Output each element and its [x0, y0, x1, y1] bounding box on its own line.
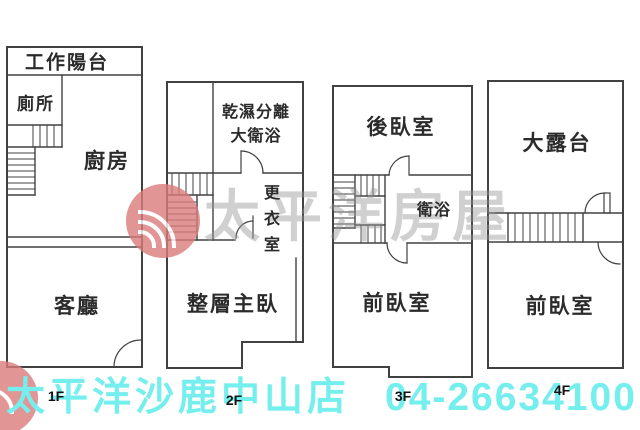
floor-label-3f: 3F [395, 388, 411, 404]
room-label-work-balcony: 工作陽台 [25, 48, 109, 75]
room-label-toilet: 廁所 [17, 90, 55, 115]
floor-label-2f: 2F [226, 392, 242, 408]
floor4-stairs [515, 213, 575, 242]
watermark-brand-text: 太平洋房屋 [204, 188, 514, 246]
room-label-front-bedroom-4f: 前臥室 [526, 290, 595, 320]
footer-phone-number: 04-26634100 [385, 377, 637, 419]
room-label-bathroom-line2: 大衛浴 [230, 122, 281, 146]
floor4-terrace-door-arc [585, 193, 610, 213]
room-label-bathroom-3f: 衛浴 [417, 196, 451, 220]
room-label-living-room: 客廳 [54, 290, 100, 320]
floor4-bedroom-door-arc [598, 242, 620, 264]
floor1-stairs [7, 125, 54, 189]
floor2-bathroom-door-arc [241, 151, 263, 173]
room-label-master-bedroom: 整層主臥 [187, 288, 279, 318]
room-label-dressing-room: 更衣室 [265, 184, 283, 262]
room-label-front-bedroom-3f: 前臥室 [363, 287, 432, 317]
watermark-logo-icon [126, 184, 200, 258]
floorplan-image: 太平洋房屋 工作陽台 廁所 廚房 客廳 1F 乾濕分離 大衛浴 更衣室 整層主臥… [0, 0, 640, 430]
room-label-back-bedroom: 後臥室 [367, 111, 436, 141]
room-label-bathroom-line1: 乾濕分離 [222, 98, 290, 122]
floor3-back-bedroom-door-arc [389, 156, 409, 175]
room-label-kitchen: 廚房 [84, 145, 130, 175]
floor-label-1f: 1F [48, 388, 64, 404]
room-label-terrace: 大露台 [523, 127, 592, 157]
floor-label-4f: 4F [554, 382, 570, 398]
floor1-door-arc [114, 340, 141, 367]
